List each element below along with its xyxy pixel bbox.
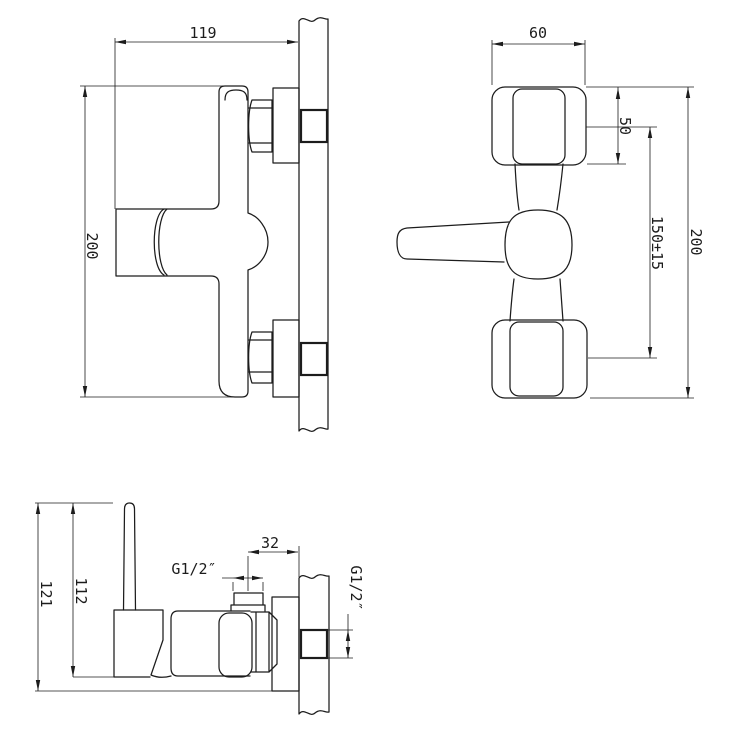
upper-neck — [515, 164, 563, 210]
dim-label-height-200-side: 200 — [83, 232, 101, 259]
pipe-connector-upper — [301, 110, 327, 142]
escutcheon-lower — [273, 320, 299, 397]
cartridge-housing — [219, 613, 252, 677]
body-top-cap-seam — [225, 90, 247, 100]
pipe-connector-lower — [301, 343, 327, 375]
escutcheon-upper-cap — [513, 89, 565, 164]
thread-label-inlet: G1/2″ — [347, 565, 365, 610]
lever-handle-front — [397, 222, 509, 262]
hex-nut-inlet — [251, 612, 277, 672]
side-dimension-lines — [80, 38, 298, 397]
escutcheon-lower-cap — [510, 322, 563, 396]
faucet-body-outline — [116, 86, 268, 397]
dim-label-span-50: 50 — [616, 117, 634, 135]
escutcheon-upper-front — [492, 87, 586, 165]
lever-handle-top — [124, 503, 136, 610]
dim-label-depth-121: 121 — [37, 580, 55, 607]
mixer-drawing-svg: 119 200 60 50 150±15 200 — [0, 0, 740, 740]
front-view: 60 50 150±15 200 — [397, 24, 705, 398]
wall-section-bottom — [299, 575, 329, 715]
lower-neck — [510, 279, 563, 321]
handle-lever-seam — [154, 209, 167, 275]
dim-label-width-60: 60 — [529, 24, 547, 42]
drawing-sheet: 119 200 60 50 150±15 200 — [0, 0, 740, 740]
side-view: 119 200 — [80, 18, 328, 432]
escutcheon-edge — [272, 597, 299, 691]
escutcheon-upper — [273, 88, 299, 163]
wall-section — [299, 18, 328, 432]
hex-nut-lower — [249, 332, 272, 383]
escutcheon-lower-front — [492, 320, 587, 398]
handle-base-block — [114, 610, 171, 677]
body-cylinder — [171, 611, 250, 676]
thread-label-outlet: G1/2″ — [171, 560, 216, 578]
dim-label-spacing-150: 150±15 — [648, 216, 666, 270]
dim-label-depth-112: 112 — [72, 577, 90, 604]
outlet-stub — [231, 593, 265, 611]
dim-label-height-200-front: 200 — [687, 228, 705, 255]
pipe-connector-inlet — [301, 630, 327, 658]
bottom-view: 121 112 32 G1/2″ G1/2″ — [35, 503, 365, 714]
hex-nut-upper — [249, 100, 272, 152]
dim-label-offset-32: 32 — [261, 534, 279, 552]
dim-label-depth-119: 119 — [189, 24, 216, 42]
valve-body-front — [505, 210, 572, 279]
